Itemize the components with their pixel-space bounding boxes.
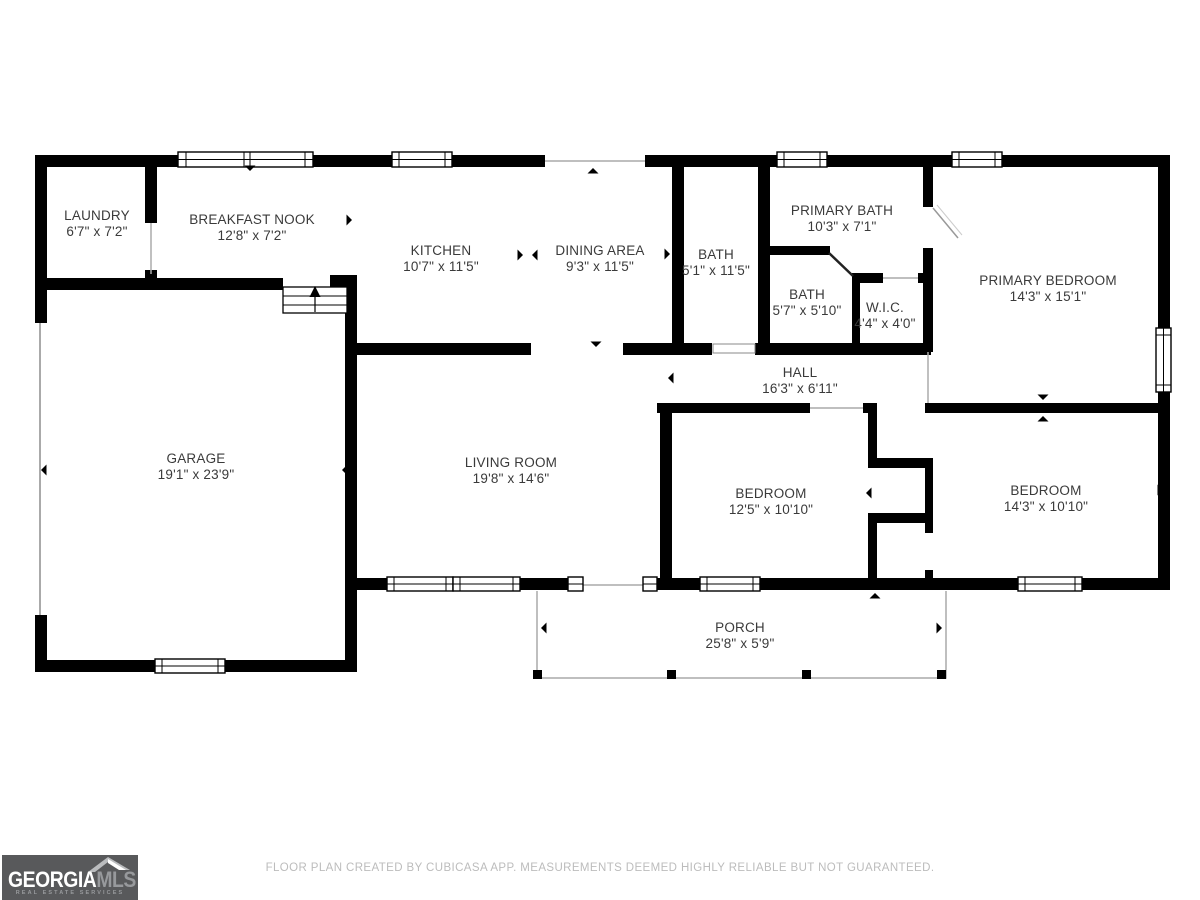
room-dims: 5'1" x 11'5" (682, 263, 750, 279)
room-dims: 10'3" x 7'1" (791, 219, 893, 235)
room-label-bath: BATH 5'1" x 11'5" (682, 247, 750, 278)
room-label-porch: PORCH 25'8" x 5'9" (706, 620, 775, 651)
room-name: W.I.C. (854, 300, 915, 316)
room-label-wic: W.I.C. 4'4" x 4'0" (854, 300, 915, 331)
room-name: PRIMARY BEDROOM (979, 273, 1117, 289)
logo-brand-secondary: MLS (96, 867, 136, 892)
room-name: BATH (682, 247, 750, 263)
room-label-living-room: LIVING ROOM 19'8" x 14'6" (465, 455, 557, 486)
room-label-garage: GARAGE 19'1" x 23'9" (158, 451, 235, 482)
room-label-primary-bedroom: PRIMARY BEDROOM 14'3" x 15'1" (979, 273, 1117, 304)
primary-bath-door-2 (937, 205, 962, 235)
room-dims: 6'7" x 7'2" (64, 224, 130, 240)
room-dims: 19'1" x 23'9" (158, 467, 235, 483)
room-name: DINING AREA (555, 243, 644, 259)
room-dims: 10'7" x 11'5" (403, 259, 479, 275)
primary-bath-door (933, 208, 958, 238)
logo-brand-primary: GEORGIA (8, 867, 96, 892)
georgia-mls-logo: GEORGIAMLS REAL ESTATE SERVICES (2, 855, 138, 900)
room-name: LIVING ROOM (465, 455, 557, 471)
room-dims: 12'8" x 7'2" (189, 228, 315, 244)
bath-door (713, 344, 755, 353)
bath2-door (829, 253, 853, 276)
room-label-bedroom-2: BEDROOM 14'3" x 10'10" (1004, 483, 1088, 514)
room-name: BEDROOM (729, 486, 813, 502)
room-name: PRIMARY BATH (791, 203, 893, 219)
room-name: PORCH (706, 620, 775, 636)
room-dims: 5'7" x 5'10" (773, 303, 842, 319)
room-name: HALL (762, 365, 838, 381)
stairs-icon (283, 286, 347, 313)
room-dims: 25'8" x 5'9" (706, 636, 775, 652)
room-label-laundry: LAUNDRY 6'7" x 7'2" (64, 208, 130, 239)
room-label-primary-bath: PRIMARY BATH 10'3" x 7'1" (791, 203, 893, 234)
room-dims: 16'3" x 6'11" (762, 381, 838, 397)
room-name: LAUNDRY (64, 208, 130, 224)
room-label-bath-2: BATH 5'7" x 5'10" (773, 287, 842, 318)
room-label-hall: HALL 16'3" x 6'11" (762, 365, 838, 396)
room-dims: 9'3" x 11'5" (555, 259, 644, 275)
footer-disclaimer: FLOOR PLAN CREATED BY CUBICASA APP. MEAS… (0, 862, 1200, 874)
logo-tagline: REAL ESTATE SERVICES (2, 890, 138, 896)
room-dims: 14'3" x 10'10" (1004, 499, 1088, 515)
room-dims: 14'3" x 15'1" (979, 289, 1117, 305)
room-label-kitchen: KITCHEN 10'7" x 11'5" (403, 243, 479, 274)
floor-plan-page: LAUNDRY 6'7" x 7'2" BREAKFAST NOOK 12'8"… (0, 0, 1200, 900)
room-name: BEDROOM (1004, 483, 1088, 499)
room-label-dining-area: DINING AREA 9'3" x 11'5" (555, 243, 644, 274)
room-dims: 12'5" x 10'10" (729, 502, 813, 518)
room-name: KITCHEN (403, 243, 479, 259)
room-name: GARAGE (158, 451, 235, 467)
room-dims: 19'8" x 14'6" (465, 471, 557, 487)
room-name: BATH (773, 287, 842, 303)
room-name: BREAKFAST NOOK (189, 212, 315, 228)
room-label-bedroom-1: BEDROOM 12'5" x 10'10" (729, 486, 813, 517)
room-label-breakfast-nook: BREAKFAST NOOK 12'8" x 7'2" (189, 212, 315, 243)
floorplan-drawing (0, 0, 1200, 900)
room-dims: 4'4" x 4'0" (854, 316, 915, 332)
